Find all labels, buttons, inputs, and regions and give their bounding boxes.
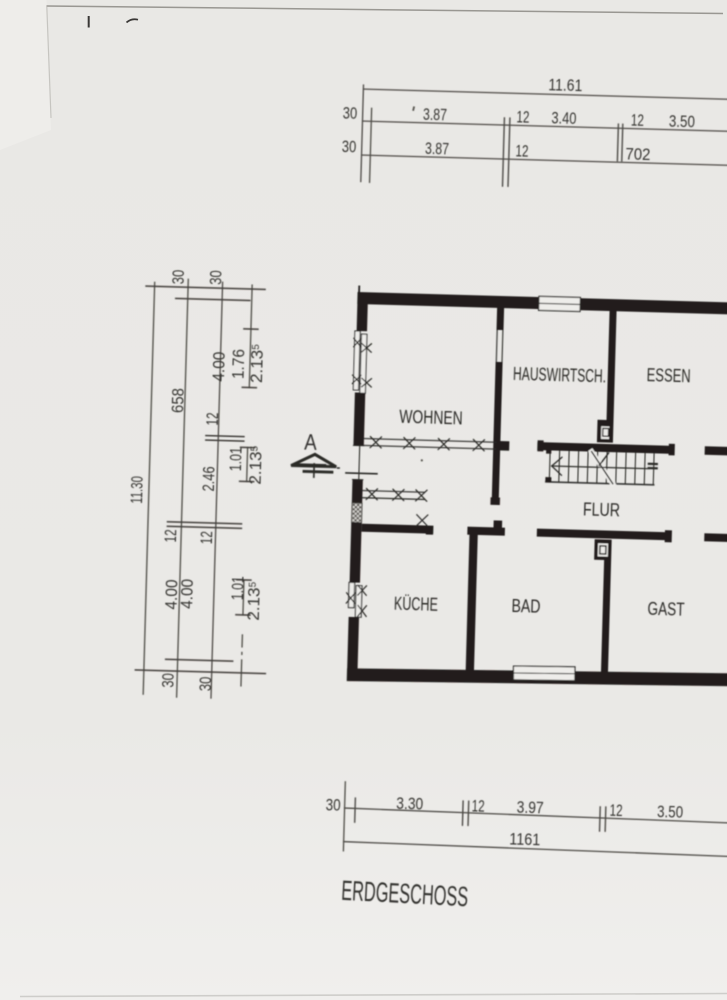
svg-text:30: 30	[196, 676, 215, 691]
svg-text:A: A	[304, 430, 317, 455]
svg-text:3.87: 3.87	[425, 139, 450, 159]
svg-text:ERDGESCHOSS: ERDGESCHOSS	[341, 875, 469, 913]
svg-text:12: 12	[197, 531, 216, 545]
svg-text:1.76: 1.76	[229, 349, 249, 380]
svg-text:30: 30	[342, 137, 357, 156]
svg-text:BAD: BAD	[511, 595, 541, 617]
svg-text:3.50: 3.50	[669, 112, 696, 132]
svg-text:12: 12	[515, 141, 529, 160]
svg-text:12: 12	[471, 796, 485, 815]
svg-text:HAUSWIRTSCH.: HAUSWIRTSCH.	[513, 363, 607, 387]
svg-text:12: 12	[609, 801, 623, 820]
svg-text:658: 658	[168, 388, 188, 414]
svg-text:3.87: 3.87	[423, 105, 448, 125]
svg-text:4.00: 4.00	[177, 579, 197, 610]
svg-text:WOHNEN: WOHNEN	[399, 406, 463, 429]
svg-text:30: 30	[158, 673, 177, 688]
svg-text:2.46: 2.46	[199, 466, 219, 492]
svg-text:GAST: GAST	[647, 598, 685, 620]
svg-text:12: 12	[203, 412, 222, 426]
svg-text:30: 30	[325, 795, 341, 814]
svg-text:12: 12	[516, 107, 530, 126]
svg-text:3.40: 3.40	[551, 108, 577, 128]
svg-text:3.97: 3.97	[516, 798, 544, 818]
svg-text:30: 30	[342, 104, 357, 123]
svg-text:702: 702	[625, 144, 651, 164]
svg-text:1161: 1161	[509, 829, 541, 849]
svg-text:3.30: 3.30	[396, 794, 424, 814]
svg-text:12: 12	[161, 529, 180, 543]
svg-text:30: 30	[206, 270, 225, 285]
svg-text:4.00: 4.00	[209, 351, 229, 382]
svg-text:1.01: 1.01	[226, 447, 246, 472]
svg-text:30: 30	[169, 269, 188, 284]
svg-text:11.61: 11.61	[548, 75, 583, 95]
svg-text:ESSEN: ESSEN	[646, 364, 691, 386]
svg-text:12: 12	[631, 111, 645, 130]
svg-text:11.30: 11.30	[127, 476, 147, 504]
svg-text:FLUR: FLUR	[583, 498, 621, 520]
svg-text:KÜCHE: KÜCHE	[394, 593, 439, 615]
svg-text:3.50: 3.50	[657, 802, 684, 822]
